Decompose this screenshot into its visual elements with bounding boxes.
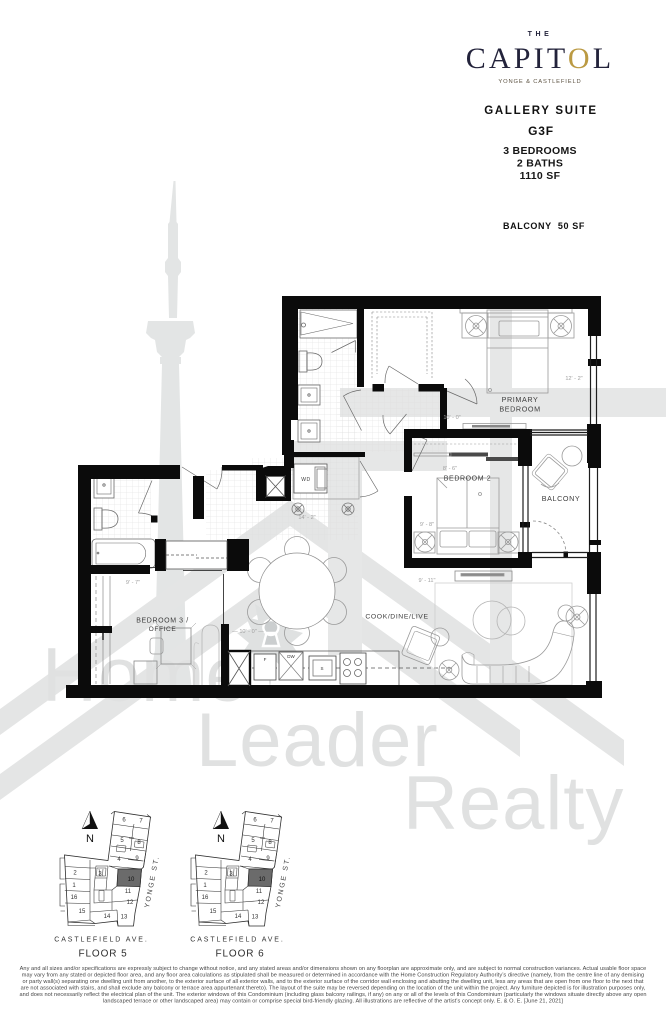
svg-text:1110 SF: 1110 SF <box>520 170 561 182</box>
svg-text:14: 14 <box>235 914 242 920</box>
svg-text:CASTLEFIELD AVE.: CASTLEFIELD AVE. <box>190 937 284 944</box>
svg-text:CASTLEFIELD AVE.: CASTLEFIELD AVE. <box>54 937 148 944</box>
svg-text:N: N <box>217 833 225 845</box>
svg-text:2 BATHS: 2 BATHS <box>517 158 563 170</box>
svg-text:15: 15 <box>210 909 217 915</box>
svg-text:4: 4 <box>248 857 252 863</box>
svg-text:or party wall(s) separating on: or party wall(s) separating one dwelling… <box>22 979 643 985</box>
svg-text:S: S <box>320 666 323 671</box>
svg-text:BEDROOM: BEDROOM <box>499 405 540 414</box>
svg-text:WD: WD <box>301 477 311 483</box>
svg-text:5: 5 <box>120 838 124 844</box>
svg-text:10' - 0": 10' - 0" <box>443 415 460 421</box>
svg-text:DW: DW <box>287 654 295 659</box>
svg-text:16: 16 <box>202 895 209 901</box>
svg-text:F: F <box>264 657 267 662</box>
svg-text:9' - 7": 9' - 7" <box>126 580 140 586</box>
svg-text:4: 4 <box>117 857 121 863</box>
svg-text:3: 3 <box>98 872 102 878</box>
svg-text:9: 9 <box>135 856 139 862</box>
svg-text:9' - 8": 9' - 8" <box>420 522 434 528</box>
svg-text:6: 6 <box>253 818 257 824</box>
svg-text:3: 3 <box>229 872 233 878</box>
svg-text:3 BEDROOMS: 3 BEDROOMS <box>503 145 577 157</box>
svg-text:13: 13 <box>252 915 259 921</box>
svg-text:8' - 6": 8' - 6" <box>443 466 457 472</box>
svg-text:landscaped terrace or other la: landscaped terrace or other landscaped a… <box>103 999 563 1005</box>
svg-text:Any and all sizes and/or speci: Any and all sizes and/or specifications … <box>20 966 647 972</box>
svg-text:12: 12 <box>258 900 265 906</box>
svg-text:BEDROOM 3 /: BEDROOM 3 / <box>136 618 189 625</box>
svg-text:10: 10 <box>259 877 266 883</box>
svg-text:CAPITOL: CAPITOL <box>466 42 615 75</box>
svg-text:16: 16 <box>71 895 78 901</box>
svg-text:15: 15 <box>79 909 86 915</box>
svg-text:BEDROOM 2: BEDROOM 2 <box>444 476 491 483</box>
svg-text:6: 6 <box>122 818 126 824</box>
svg-text:1: 1 <box>203 883 207 889</box>
svg-text:2: 2 <box>73 871 77 877</box>
svg-text:BALCONY: BALCONY <box>542 494 581 503</box>
svg-text:YONGE ST.: YONGE ST. <box>275 855 292 909</box>
svg-text:Realty: Realty <box>403 761 624 846</box>
svg-text:FLOOR 6: FLOOR 6 <box>215 949 264 960</box>
svg-text:8: 8 <box>268 840 272 846</box>
svg-text:YONGE & CASTLEFIELD: YONGE & CASTLEFIELD <box>498 79 581 85</box>
svg-text:1: 1 <box>72 883 76 889</box>
svg-text:BALCONY 50 SF: BALCONY 50 SF <box>503 221 585 231</box>
svg-text:13: 13 <box>121 915 128 921</box>
svg-text:THE: THE <box>528 31 553 38</box>
svg-text:FLOOR 5: FLOOR 5 <box>78 949 127 960</box>
svg-text:YONGE ST.: YONGE ST. <box>144 855 161 909</box>
svg-text:9: 9 <box>266 856 270 862</box>
svg-text:— 10' - 0" —: — 10' - 0" — <box>232 629 264 635</box>
svg-text:14' - 2": 14' - 2" <box>298 515 315 521</box>
svg-text:12' - 2": 12' - 2" <box>565 376 582 382</box>
svg-text:are not associated with stairs: are not associated with stairs, and shal… <box>21 986 646 992</box>
svg-text:GALLERY SUITE: GALLERY SUITE <box>484 105 597 117</box>
svg-text:7: 7 <box>139 819 143 825</box>
svg-text:2: 2 <box>204 871 208 877</box>
svg-text:OFFICE: OFFICE <box>149 626 177 633</box>
svg-text:PRIMARY: PRIMARY <box>502 395 539 404</box>
svg-text:may vary from any stated or de: may vary from any stated or depicted flo… <box>22 973 644 979</box>
svg-text:5: 5 <box>251 838 255 844</box>
svg-text:14: 14 <box>104 914 111 920</box>
svg-text:9' - 11": 9' - 11" <box>419 578 436 584</box>
svg-text:G3F: G3F <box>528 124 554 138</box>
svg-text:N: N <box>86 833 94 845</box>
svg-text:7: 7 <box>270 819 274 825</box>
svg-text:12: 12 <box>127 900 134 906</box>
svg-text:8: 8 <box>137 840 141 846</box>
svg-text:11: 11 <box>256 889 263 895</box>
svg-text:and does not necessarily refle: and does not necessarily reflect the ele… <box>19 992 646 998</box>
svg-text:10: 10 <box>128 877 135 883</box>
svg-text:11: 11 <box>125 889 132 895</box>
svg-text:COOK/DINE/LIVE: COOK/DINE/LIVE <box>365 614 428 621</box>
